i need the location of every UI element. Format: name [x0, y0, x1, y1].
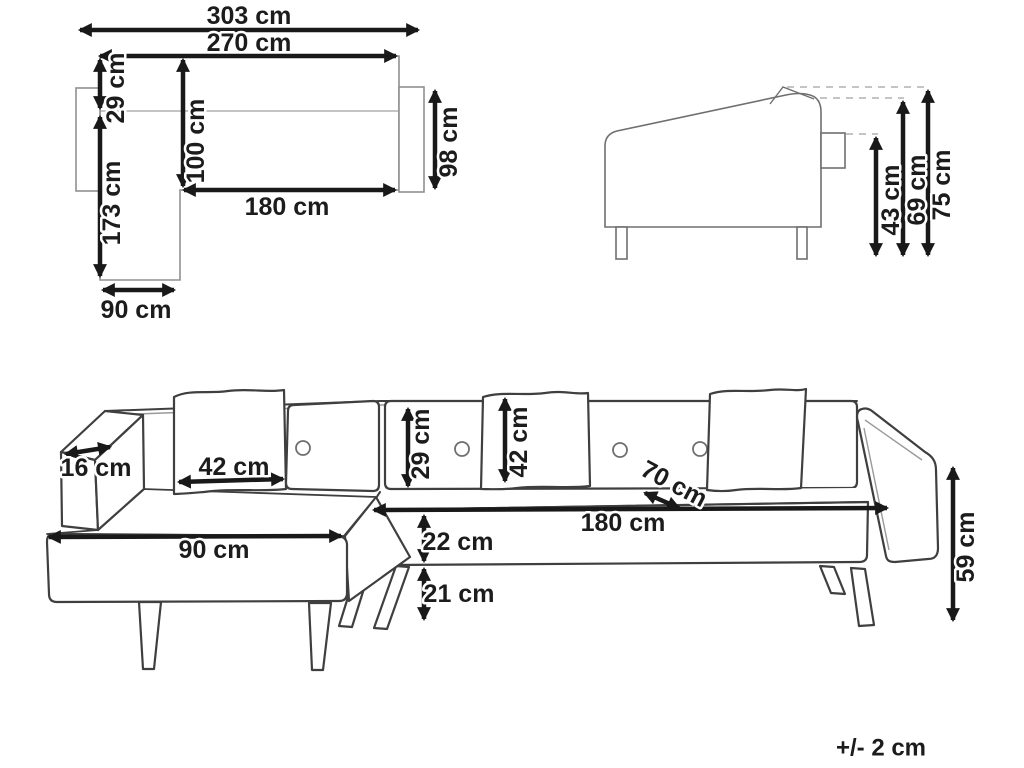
- dim-front-cushion-width: 42 cm: [199, 453, 270, 481]
- pillow: [707, 389, 806, 491]
- dim-plan-chaise-width: 90 cm: [101, 296, 172, 324]
- sofa-leg: [139, 602, 161, 669]
- dim-side-seat-height: 43 cm: [877, 165, 905, 236]
- plan-right-armrest: [399, 87, 424, 192]
- dim-front-seat-width: 180 cm: [581, 509, 666, 537]
- tufting-button: [296, 441, 310, 455]
- dim-plan-right-depth: 98 cm: [435, 107, 463, 178]
- right-armrest: [857, 408, 938, 562]
- dim-plan-sofa-depth: 100 cm: [182, 99, 210, 184]
- tufting-button: [455, 442, 469, 456]
- top-view: 303 cm 270 cm 29 cm 100 cm 173 cm 98 cm …: [76, 2, 463, 324]
- tufting-button: [613, 443, 627, 457]
- plan-left-armrest: [76, 88, 100, 191]
- side-leg-left: [616, 227, 627, 259]
- dim-front-chaise-width: 90 cm: [179, 536, 250, 564]
- dim-front-armrest-height: 59 cm: [952, 512, 980, 583]
- pillow: [481, 392, 590, 489]
- dim-plan-total-width: 303 cm: [207, 2, 292, 30]
- sofa-leg: [309, 603, 331, 670]
- dim-side-total-height: 75 cm: [928, 150, 956, 221]
- side-leg-right: [797, 227, 807, 259]
- diagram-canvas: 303 cm 270 cm 29 cm 100 cm 173 cm 98 cm …: [0, 0, 1024, 768]
- dim-plan-body-width: 270 cm: [207, 29, 292, 57]
- dim-side-armrest-height: 69 cm: [903, 155, 931, 226]
- dim-front-armrest-width: 16 cm: [61, 454, 132, 482]
- sofa-leg: [820, 566, 845, 594]
- tufting-button: [693, 442, 707, 456]
- dim-front-backrest-height: 29 cm: [407, 409, 435, 480]
- sofa-dimension-diagram: 303 cm 270 cm 29 cm 100 cm 173 cm 98 cm …: [0, 0, 1024, 768]
- dim-front-cushion-height: 42 cm: [505, 407, 533, 478]
- front-view: 16 cm 42 cm 90 cm 29 cm 42 cm 70 cm 180 …: [47, 389, 980, 670]
- side-view: 43 cm 69 cm 75 cm: [605, 87, 956, 259]
- sofa-leg: [851, 568, 874, 626]
- dim-front-seat-front-height: 22 cm: [423, 528, 494, 556]
- dim-plan-seat-width: 180 cm: [245, 193, 330, 221]
- dim-front-leg-height: 21 cm: [424, 580, 495, 608]
- tolerance-note: +/- 2 cm: [836, 735, 926, 762]
- side-armrest: [821, 133, 845, 168]
- dim-plan-backrest-depth: 29 cm: [102, 53, 130, 124]
- dim-plan-chaise-length: 173 cm: [98, 161, 126, 246]
